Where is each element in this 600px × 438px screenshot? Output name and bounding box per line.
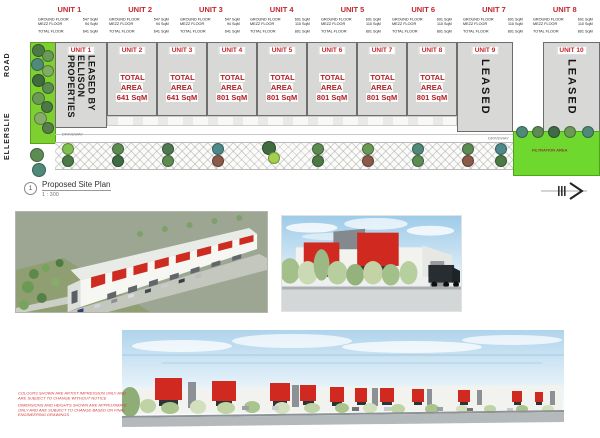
plan-number-circle: 1 <box>24 182 37 195</box>
tree-icon <box>312 155 324 167</box>
street-road <box>282 287 461 311</box>
plan-unit-label: UNIT 4 <box>219 46 246 55</box>
unit-heading: UNIT 8 <box>529 5 600 14</box>
tree-icon <box>112 155 124 167</box>
leased-text: LEASED <box>458 43 512 131</box>
unit-heading: UNIT 4 <box>246 5 317 14</box>
tree-icon <box>42 50 54 62</box>
unit-heading: UNIT 1 <box>34 5 105 14</box>
tree-icon <box>42 65 54 77</box>
stat-value: 641 SqM <box>154 29 169 34</box>
tree-icon <box>532 126 544 138</box>
header-unit-3: UNIT 3 GROUND FLOOR547 SqM MEZZ FLOOR94 … <box>176 2 247 40</box>
plan-unit-10: UNIT 10 LEASED <box>543 42 600 132</box>
street-render <box>281 215 462 312</box>
plan-unit-label: UNIT 3 <box>169 46 196 55</box>
stat-value: 641 SqM <box>83 29 98 34</box>
header-unit-5: UNIT 5 GROUND FLOOR691 SqM MEZZ FLOOR110… <box>317 2 388 40</box>
stat-value: 110 SqM <box>366 22 381 27</box>
stat-value: 110 SqM <box>437 22 452 27</box>
stat-label: TOTAL FLOOR <box>463 29 489 34</box>
disclaimer: COLOURS SHOWN ARE ARTIST IMPRESSION ONLY… <box>18 391 130 435</box>
tree-icon <box>412 155 424 167</box>
tree-icon <box>212 143 224 155</box>
north-arrow-icon <box>541 180 587 207</box>
stat-label: MEZZ FLOOR <box>109 22 133 27</box>
plan-unit-3: UNIT 3 TOTAL AREA641 SqM <box>157 42 207 116</box>
stat-value: 94 SqM <box>156 22 169 27</box>
road-word: ROAD <box>4 52 11 77</box>
tree-icon <box>495 155 507 167</box>
plan-unit-1: UNIT 1 LEASED BY ELLISON PROPERTIES <box>55 42 107 128</box>
tree-icon <box>362 143 374 155</box>
plan-unit-label: UNIT 8 <box>419 46 446 55</box>
road-name: ELLERSLIE <box>4 112 11 160</box>
tree-icon <box>112 143 124 155</box>
stat-value: 641 SqM <box>224 29 239 34</box>
stat-label: TOTAL FLOOR <box>109 29 135 34</box>
stat-label: TOTAL FLOOR <box>392 29 418 34</box>
plan-sheet: UNIT 1 GROUND FLOOR547 SqM MEZZ FLOOR94 … <box>0 0 600 438</box>
plan-unit-6: UNIT 6 TOTAL AREA801 SqM <box>307 42 357 116</box>
stat-value: 110 SqM <box>578 22 593 27</box>
plan-title-block: 1 Proposed Site Plan 1 : 300 <box>24 180 111 198</box>
tree-icon <box>516 126 528 138</box>
tree-icon <box>412 143 424 155</box>
header-unit-2: UNIT 2 GROUND FLOOR547 SqM MEZZ FLOOR94 … <box>105 2 176 40</box>
stat-value: 94 SqM <box>226 22 239 27</box>
header-unit-7: UNIT 7 GROUND FLOOR691 SqM MEZZ FLOOR110… <box>459 2 530 40</box>
leased-by-text: LEASED BY ELLISON PROPERTIES <box>56 43 106 127</box>
plan-unit-4: UNIT 4 TOTAL AREA801 SqM <box>207 42 257 116</box>
plan-unit-label: UNIT 5 <box>269 46 296 55</box>
tree-icon <box>548 126 560 138</box>
stat-label: MEZZ FLOOR <box>250 22 274 27</box>
tree-icon <box>42 82 54 94</box>
plan-unit-2: UNIT 2 TOTAL AREA641 SqM <box>107 42 157 116</box>
stat-label: MEZZ FLOOR <box>392 22 416 27</box>
disclaimer-colours: COLOURS SHOWN ARE ARTIST IMPRESSION ONLY… <box>18 391 130 401</box>
header-unit-4: UNIT 4 GROUND FLOOR691 SqM MEZZ FLOOR110… <box>246 2 317 40</box>
stat-value: 110 SqM <box>508 22 523 27</box>
header-unit-8: UNIT 8 GROUND FLOOR691 SqM MEZZ FLOOR110… <box>529 2 600 40</box>
stat-value: 801 SqM <box>437 29 452 34</box>
header-unit-6: UNIT 6 GROUND FLOOR691 SqM MEZZ FLOOR110… <box>388 2 459 40</box>
stat-label: MEZZ FLOOR <box>38 22 62 27</box>
disclaimer-dimensions: DIMENSIONS AND HEIGHTS SHOWN ARE APPROXI… <box>18 403 130 417</box>
panorama-render <box>122 330 564 427</box>
total-area-text: TOTAL AREA801 SqM <box>208 73 256 103</box>
stat-label: MEZZ FLOOR <box>180 22 204 27</box>
unit-heading: UNIT 3 <box>176 5 247 14</box>
plan-scale: 1 : 300 <box>42 192 111 198</box>
tree-icon <box>62 155 74 167</box>
stat-label: TOTAL FLOOR <box>38 29 64 34</box>
tree-icon <box>312 143 324 155</box>
stat-value: 801 SqM <box>366 29 381 34</box>
stat-label: TOTAL FLOOR <box>180 29 206 34</box>
tree-icon <box>42 122 54 134</box>
total-area-text: TOTAL AREA641 SqM <box>158 73 206 103</box>
tree-icon <box>362 155 374 167</box>
total-area-text: TOTAL AREA801 SqM <box>308 73 356 103</box>
leased-text: LEASED <box>544 43 599 131</box>
tree-icon <box>162 155 174 167</box>
plan-unit-8: UNIT 8 TOTAL AREA801 SqM <box>407 42 457 116</box>
tree-icon <box>30 148 44 162</box>
tree-icon <box>582 126 594 138</box>
tree-icon <box>462 155 474 167</box>
plan-title: Proposed Site Plan <box>42 180 111 191</box>
total-area-text: TOTAL AREA801 SqM <box>358 73 406 103</box>
stat-label: MEZZ FLOOR <box>533 22 557 27</box>
stat-value: 94 SqM <box>85 22 98 27</box>
stat-label: TOTAL FLOOR <box>533 29 559 34</box>
tree-icon <box>212 155 224 167</box>
road-name-label: ELLERSLIE ROAD <box>4 52 11 160</box>
unit-heading: UNIT 7 <box>459 5 530 14</box>
stat-value: 801 SqM <box>295 29 310 34</box>
plan-unit-7: UNIT 7 TOTAL AREA801 SqM <box>357 42 407 116</box>
total-area-text: TOTAL AREA801 SqM <box>258 73 306 103</box>
unit-entries-strip <box>107 116 457 126</box>
stat-label: MEZZ FLOOR <box>321 22 345 27</box>
stat-label: MEZZ FLOOR <box>463 22 487 27</box>
header-unit-1: UNIT 1 GROUND FLOOR547 SqM MEZZ FLOOR94 … <box>34 2 105 40</box>
driveway-label: DRIVEWAY <box>62 132 122 141</box>
unit-heading: UNIT 5 <box>317 5 388 14</box>
unit-heading: UNIT 6 <box>388 5 459 14</box>
aerial-render <box>15 211 268 313</box>
tree-icon <box>462 143 474 155</box>
stat-value: 801 SqM <box>578 29 593 34</box>
total-area-text: TOTAL AREA641 SqM <box>108 73 156 103</box>
total-area-text: TOTAL AREA801 SqM <box>408 73 456 103</box>
tree-icon <box>41 101 53 113</box>
plan-unit-5: UNIT 5 TOTAL AREA801 SqM <box>257 42 307 116</box>
tree-icon <box>564 126 576 138</box>
stat-value: 801 SqM <box>507 29 522 34</box>
unit-heading: UNIT 2 <box>105 5 176 14</box>
plan-unit-label: UNIT 7 <box>369 46 396 55</box>
stat-value: 110 SqM <box>295 22 310 27</box>
tree-icon <box>32 163 46 177</box>
plan-unit-label: UNIT 6 <box>319 46 346 55</box>
tree-icon <box>268 152 280 164</box>
filtration-label: FILTRATION AREA <box>532 148 600 157</box>
unit-schedule-header: UNIT 1 GROUND FLOOR547 SqM MEZZ FLOOR94 … <box>34 2 600 40</box>
plan-unit-label: UNIT 2 <box>119 46 146 55</box>
tree-icon <box>162 143 174 155</box>
kerb-line <box>55 134 513 135</box>
stat-label: TOTAL FLOOR <box>321 29 347 34</box>
stat-label: TOTAL FLOOR <box>250 29 276 34</box>
tree-icon <box>62 143 74 155</box>
plan-unit-9: UNIT 9 LEASED <box>457 42 513 132</box>
